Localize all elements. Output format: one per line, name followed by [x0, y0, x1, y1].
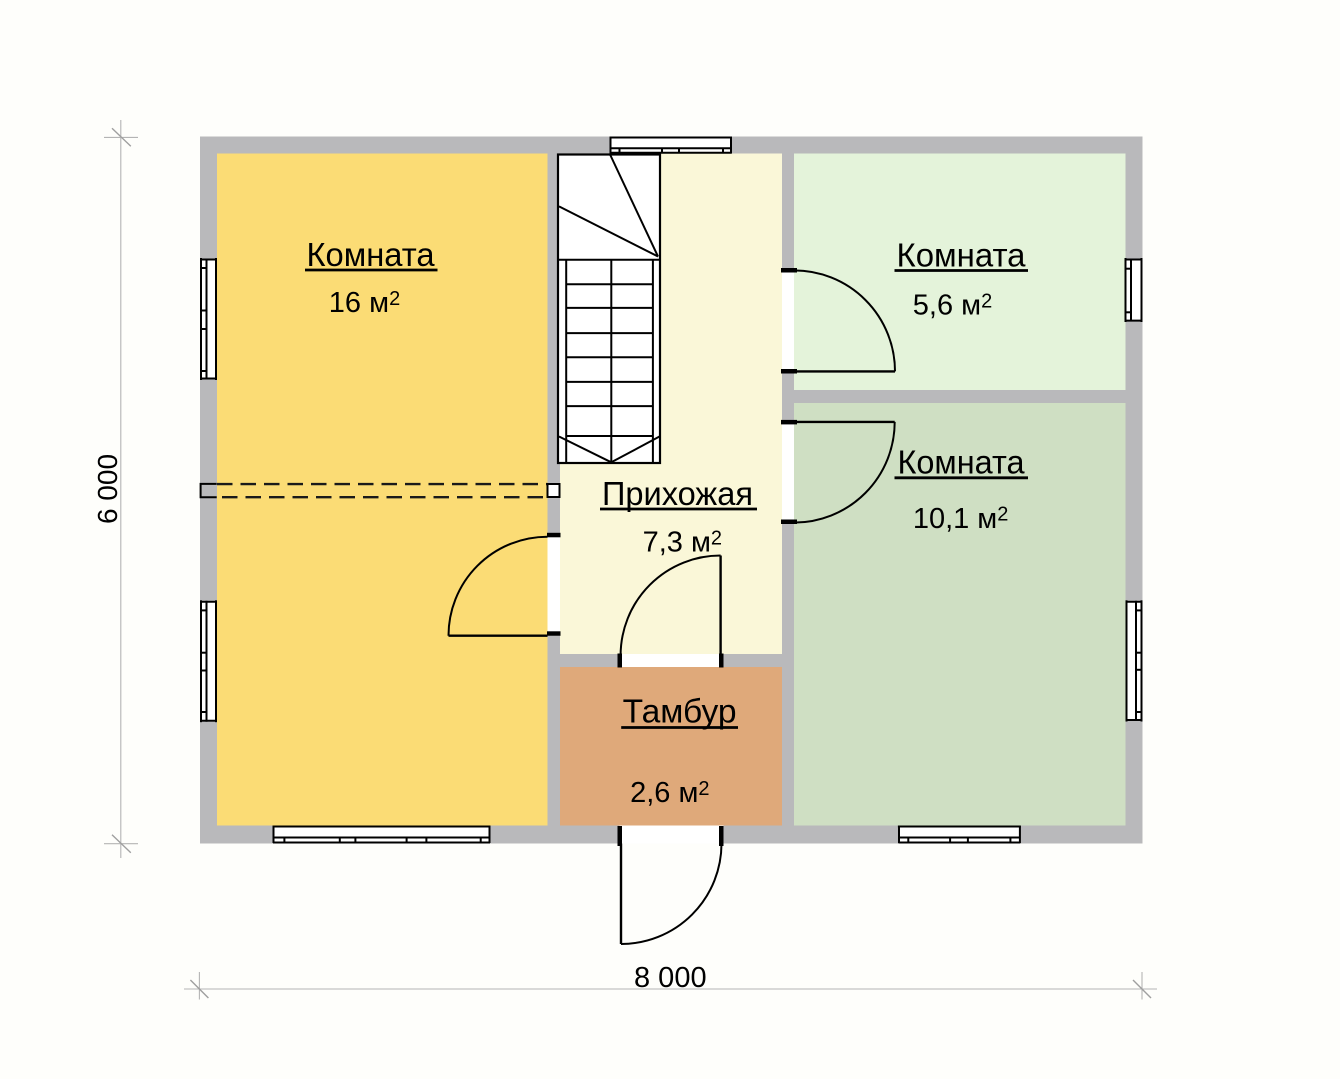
svg-text:2,6 м2: 2,6 м2 — [630, 777, 709, 809]
svg-text:Прихожая: Прихожая — [602, 475, 753, 512]
svg-text:5,6 м2: 5,6 м2 — [913, 290, 992, 322]
svg-text:Тамбур: Тамбур — [623, 693, 737, 730]
svg-text:7,3 м2: 7,3 м2 — [643, 527, 722, 559]
svg-text:Комната: Комната — [307, 236, 436, 273]
svg-text:6 000: 6 000 — [92, 454, 123, 524]
svg-text:Комната: Комната — [898, 444, 1026, 481]
svg-text:8 000: 8 000 — [634, 962, 707, 994]
svg-text:Комната: Комната — [897, 237, 1027, 274]
svg-text:10,1 м2: 10,1 м2 — [913, 503, 1009, 535]
